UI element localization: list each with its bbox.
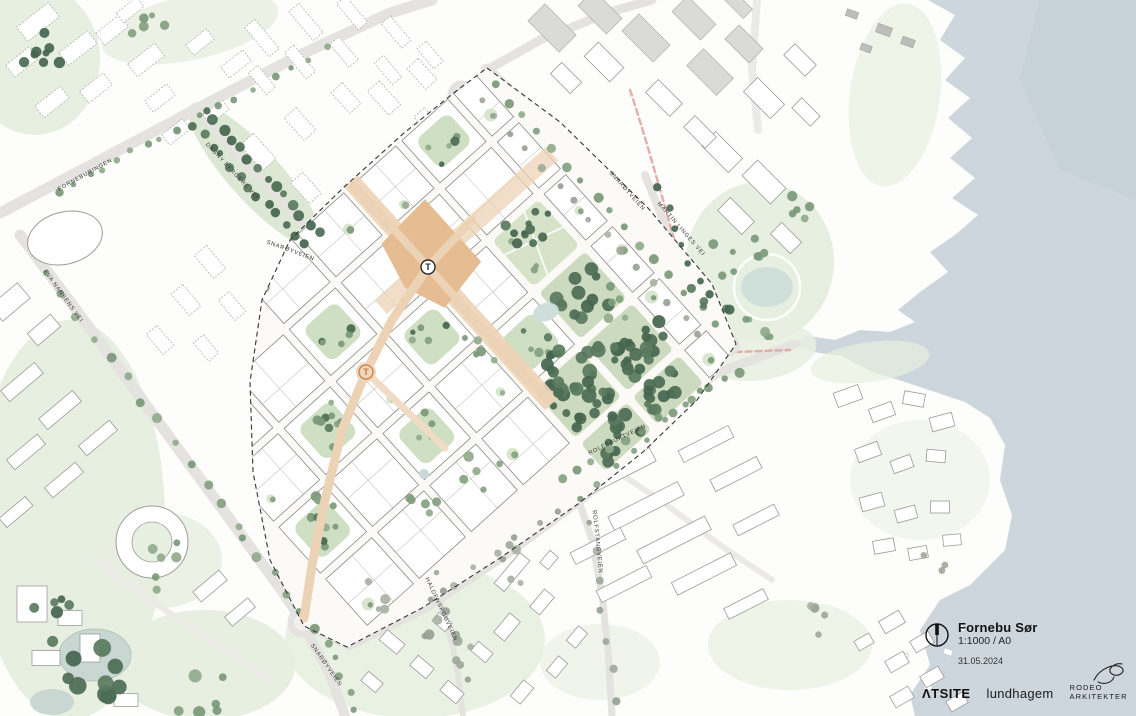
metro-station-letter: T xyxy=(363,367,369,377)
logo-strip: ΛTSITE lundhagem RODEO ARKITEKTER xyxy=(922,684,1136,701)
site-plan-map: FORNEBURINGENDAGNY BERGERS VEIEVA NANSEN… xyxy=(0,0,1136,716)
rodeo-logo-line2: ARKITEKTER xyxy=(1070,693,1128,702)
atsite-logo: ΛTSITE xyxy=(922,686,971,701)
drawing-date: 31.05.2024 xyxy=(958,656,1037,666)
lundhagem-logo: lundhagem xyxy=(987,686,1054,701)
drawing-scale: 1:1000 / A0 xyxy=(958,635,1037,648)
title-block: Fornebu Sør 1:1000 / A0 31.05.2024 xyxy=(922,620,1037,666)
street-label: EVA NANSENS VEI xyxy=(42,269,84,324)
project-title: Fornebu Sør xyxy=(958,620,1037,635)
metro-station-letter: T xyxy=(425,262,431,272)
bird-sketch-icon xyxy=(1090,662,1130,684)
rodeo-arkitekter-logo: RODEO ARKITEKTER xyxy=(1070,684,1128,701)
site-plan: FORNEBURINGENDAGNY BERGERS VEIEVA NANSEN… xyxy=(0,0,1136,716)
north-arrow-icon xyxy=(922,620,952,650)
